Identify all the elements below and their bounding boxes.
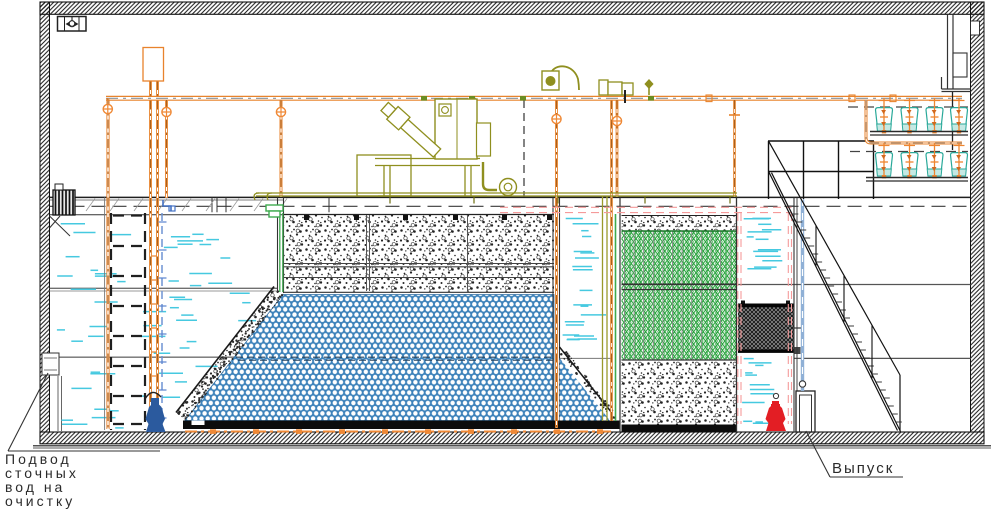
svg-text:Выпуск: Выпуск (832, 460, 894, 477)
svg-text:очистку: очистку (5, 493, 75, 509)
